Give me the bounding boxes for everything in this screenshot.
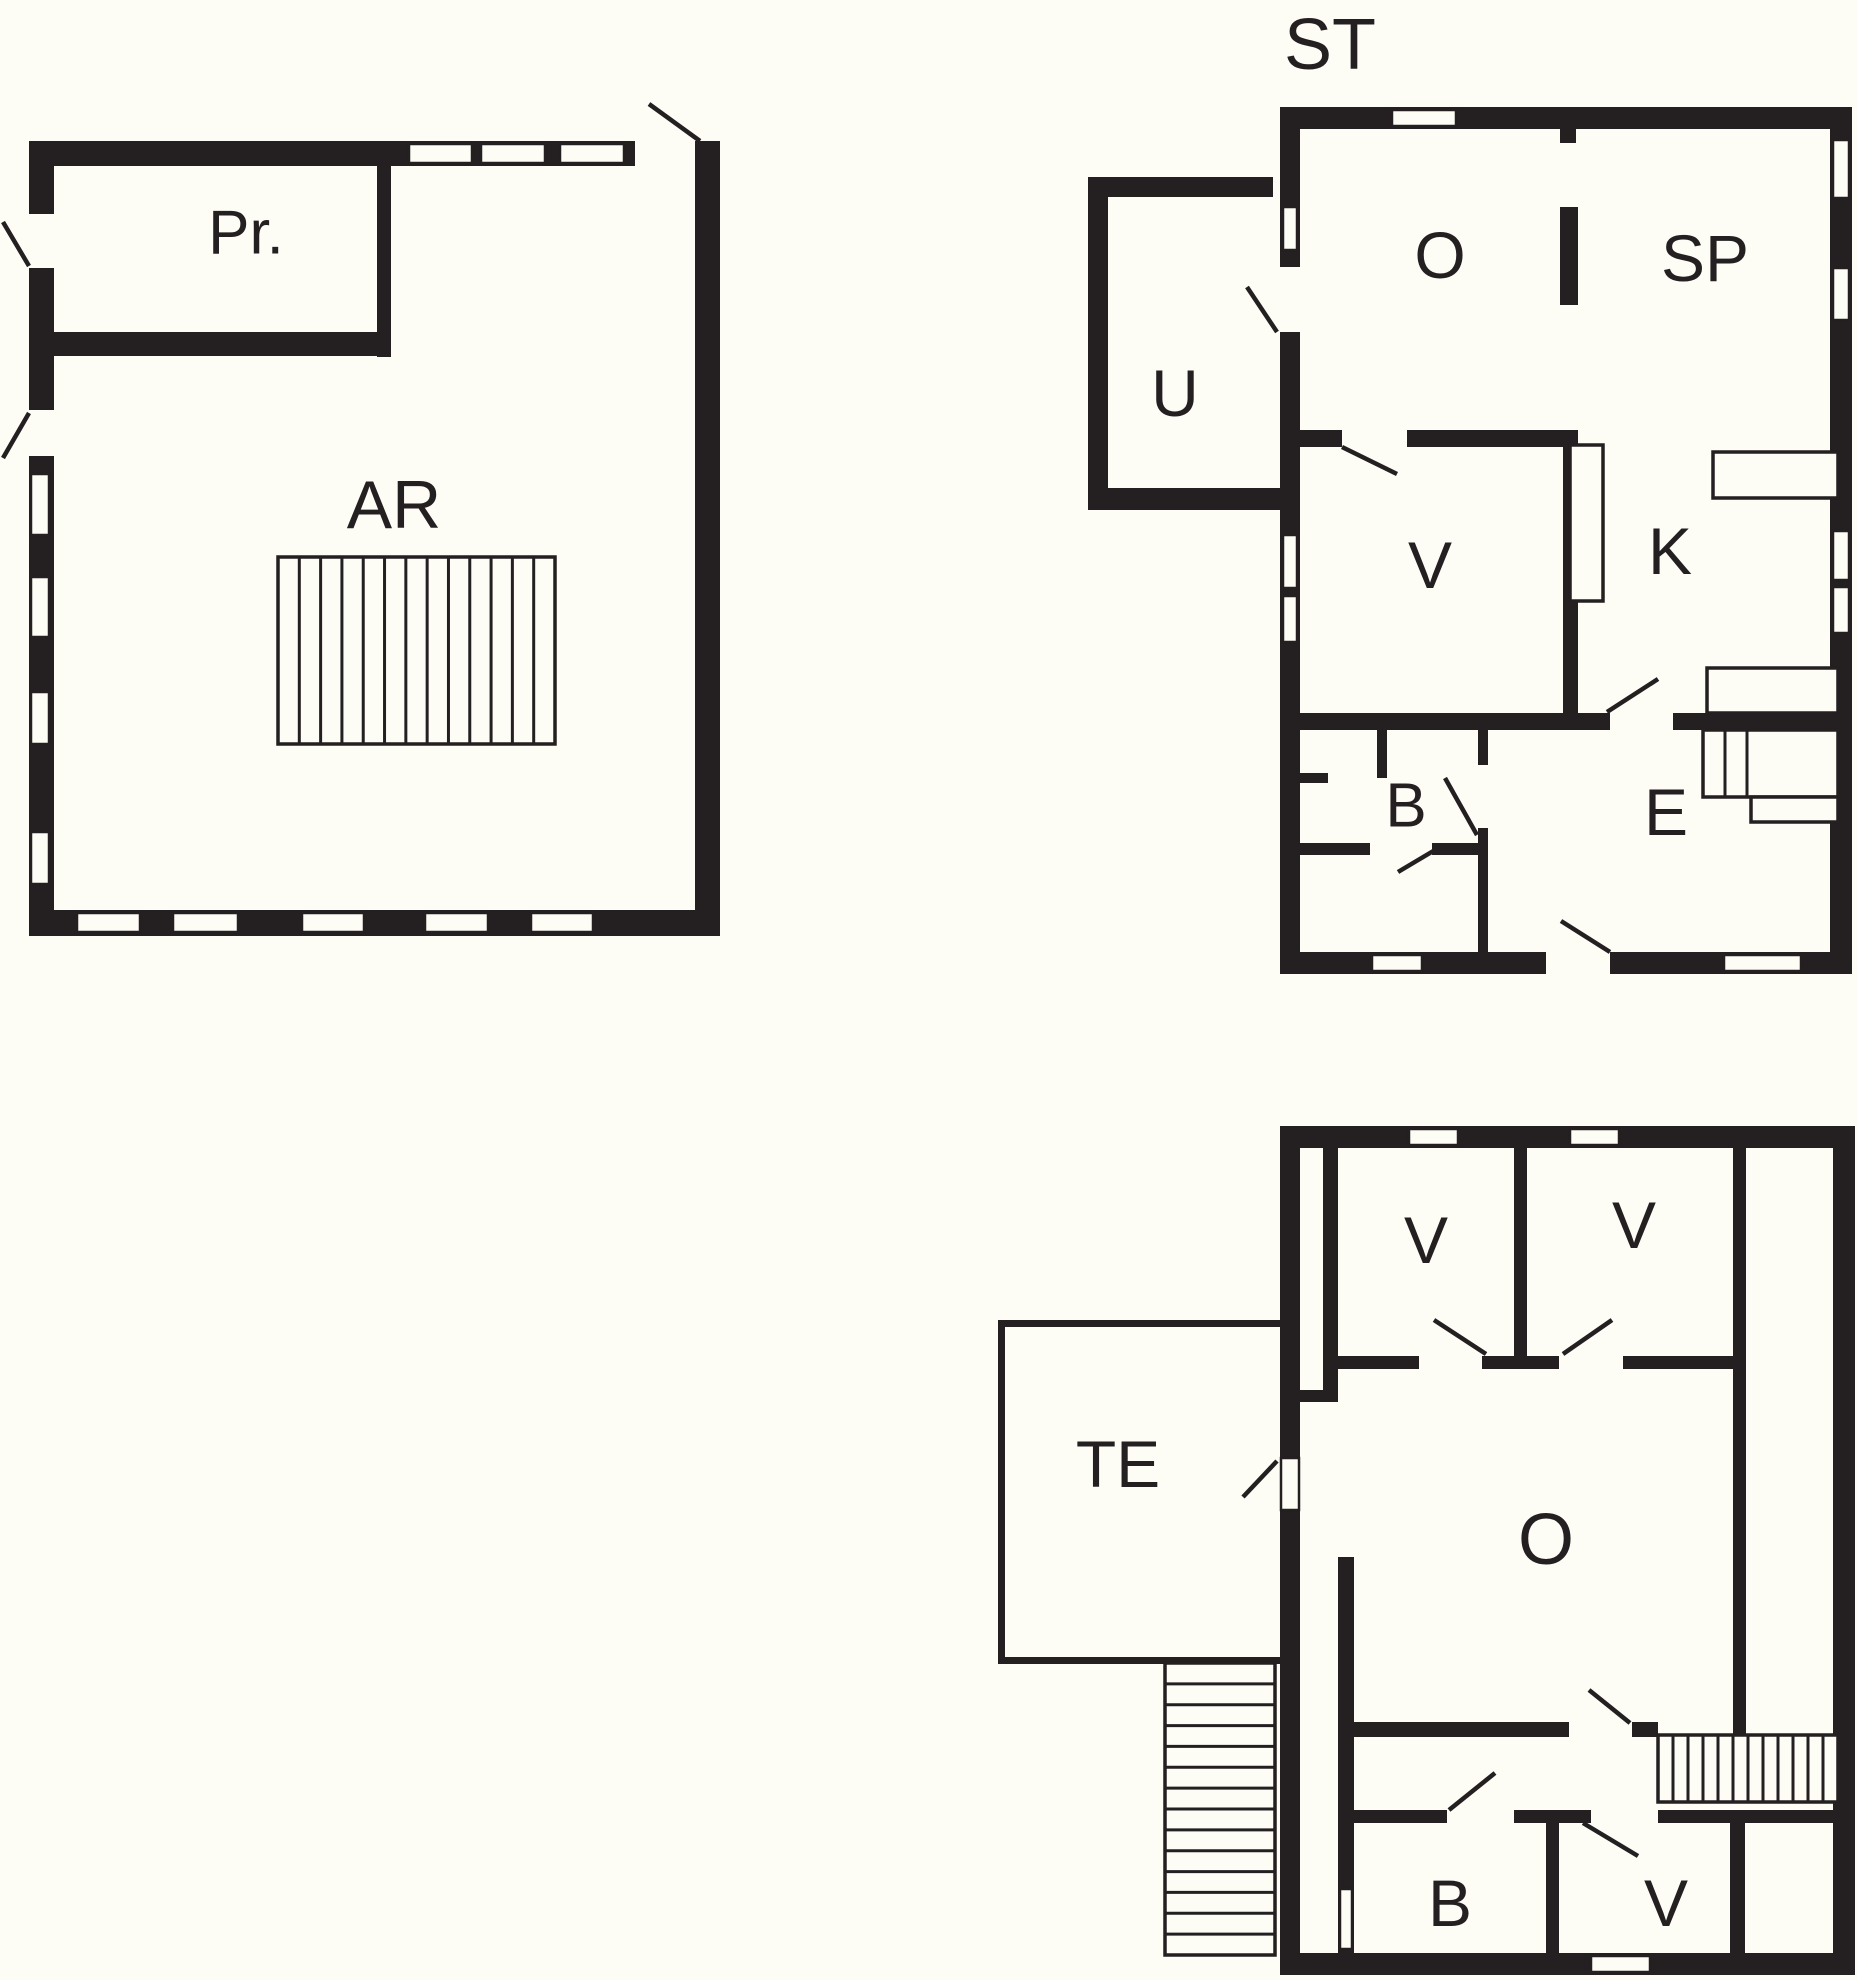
window-opening	[1392, 110, 1456, 126]
window-opening	[1283, 596, 1297, 642]
door-swing-line	[1449, 1773, 1495, 1810]
wall-segment	[1407, 430, 1565, 447]
window-opening	[1724, 955, 1801, 971]
window-opening	[302, 913, 364, 932]
staircase	[1703, 730, 1838, 797]
window-opening	[425, 913, 488, 932]
room-label: SP	[1661, 221, 1749, 295]
wall-segment	[1280, 1126, 1855, 1148]
wall-segment	[1478, 730, 1488, 765]
wall-segment	[1088, 177, 1108, 510]
wall-segment	[1323, 1356, 1419, 1369]
window-opening	[1570, 1129, 1619, 1145]
room-label: B	[1428, 1866, 1472, 1940]
window-opening	[31, 692, 49, 744]
wall-segment	[1833, 1126, 1855, 1975]
wall-segment	[1280, 332, 1300, 974]
wall-segment	[1280, 1953, 1855, 1975]
window-opening	[31, 832, 49, 884]
room-label: V	[1644, 1866, 1688, 1940]
wall-segment	[1088, 177, 1273, 197]
wall-segment	[1658, 1810, 1838, 1823]
wall-segment	[1280, 713, 1610, 730]
door-swing-line	[1434, 1320, 1486, 1354]
door-swing-line	[1589, 1690, 1630, 1723]
door-swing-line	[1243, 1461, 1277, 1497]
room-label: TE	[1076, 1427, 1160, 1501]
window-opening	[1281, 1458, 1299, 1510]
room-label: K	[1648, 514, 1692, 588]
wall-segment	[29, 141, 54, 214]
fixture-counter	[1707, 668, 1838, 713]
room-label: E	[1644, 775, 1688, 849]
window-opening	[1283, 535, 1297, 588]
wall-segment	[377, 141, 391, 357]
wall-segment	[1560, 207, 1578, 305]
wall-segment	[1280, 1510, 1300, 1955]
room-label: V	[1404, 1203, 1448, 1277]
window-opening	[481, 144, 545, 163]
room-label: ST	[1284, 5, 1376, 85]
window-opening	[1591, 1956, 1650, 1972]
window-opening	[31, 474, 49, 535]
room-label: O	[1518, 1500, 1574, 1580]
window-opening	[560, 144, 624, 163]
room-label: B	[1385, 772, 1426, 841]
room-label: AR	[347, 467, 441, 543]
window-opening	[1372, 955, 1422, 971]
window-opening	[531, 913, 593, 932]
wall-segment	[998, 1320, 1005, 1664]
wall-segment	[29, 332, 391, 356]
door-swing-line	[1563, 1320, 1612, 1354]
wall-segment	[1514, 1810, 1591, 1823]
wall-segment	[1730, 1823, 1745, 1955]
wall-segment	[1280, 430, 1342, 447]
window-opening	[1833, 140, 1849, 198]
window-opening	[1409, 1129, 1458, 1145]
room-label: Pr.	[208, 199, 284, 268]
room-label: V	[1612, 1188, 1656, 1262]
wall-segment	[1280, 107, 1852, 129]
room-label: U	[1151, 356, 1199, 430]
door-swing-line	[3, 222, 29, 266]
wall-segment	[1560, 129, 1576, 143]
door-swing-line	[1247, 287, 1277, 332]
door-swing-line	[649, 104, 700, 141]
room-label: O	[1414, 218, 1465, 292]
wall-segment	[998, 1320, 1280, 1327]
wall-segment	[1280, 1126, 1300, 1458]
window-opening	[409, 144, 472, 163]
window-opening	[1340, 1889, 1352, 1949]
window-opening	[1833, 531, 1849, 580]
door-swing-line	[1607, 679, 1658, 712]
wall-segment	[1088, 488, 1280, 510]
room-label: V	[1408, 528, 1452, 602]
window-opening	[1283, 207, 1297, 250]
wall-segment	[1546, 1823, 1559, 1955]
wall-segment	[1623, 1356, 1733, 1369]
door-swing-line	[3, 413, 29, 458]
door-swing-line	[1445, 778, 1477, 835]
fixture-counter	[1751, 797, 1838, 822]
window-opening	[31, 577, 49, 637]
wall-segment	[1296, 1390, 1338, 1402]
wall-segment	[1290, 773, 1328, 783]
door-swing-line	[1398, 847, 1440, 872]
wall-segment	[1338, 1810, 1447, 1823]
window-opening	[77, 913, 140, 932]
fixture-counter	[1713, 452, 1838, 498]
wall-segment	[1673, 713, 1852, 730]
wall-segment	[1280, 843, 1370, 855]
window-opening	[173, 913, 238, 932]
fixture-counter	[1570, 445, 1603, 601]
wall-segment	[695, 141, 720, 936]
wall-segment	[1632, 1722, 1658, 1737]
door-swing-line	[1583, 1823, 1638, 1856]
floorplan-drawing: Pr.ARSTOSPUVKBEVVTEOBV	[0, 0, 1857, 1980]
door-swing-line	[1342, 447, 1397, 474]
window-opening	[1833, 268, 1849, 320]
wall-segment	[1482, 1356, 1559, 1369]
wall-segment	[1514, 1148, 1527, 1369]
wall-segment	[1338, 1722, 1569, 1737]
window-opening	[1833, 587, 1849, 633]
door-swing-line	[1561, 921, 1610, 952]
floorplan-sheet: Pr.ARSTOSPUVKBEVVTEOBV	[0, 0, 1857, 1980]
wall-segment	[1733, 1148, 1746, 1738]
